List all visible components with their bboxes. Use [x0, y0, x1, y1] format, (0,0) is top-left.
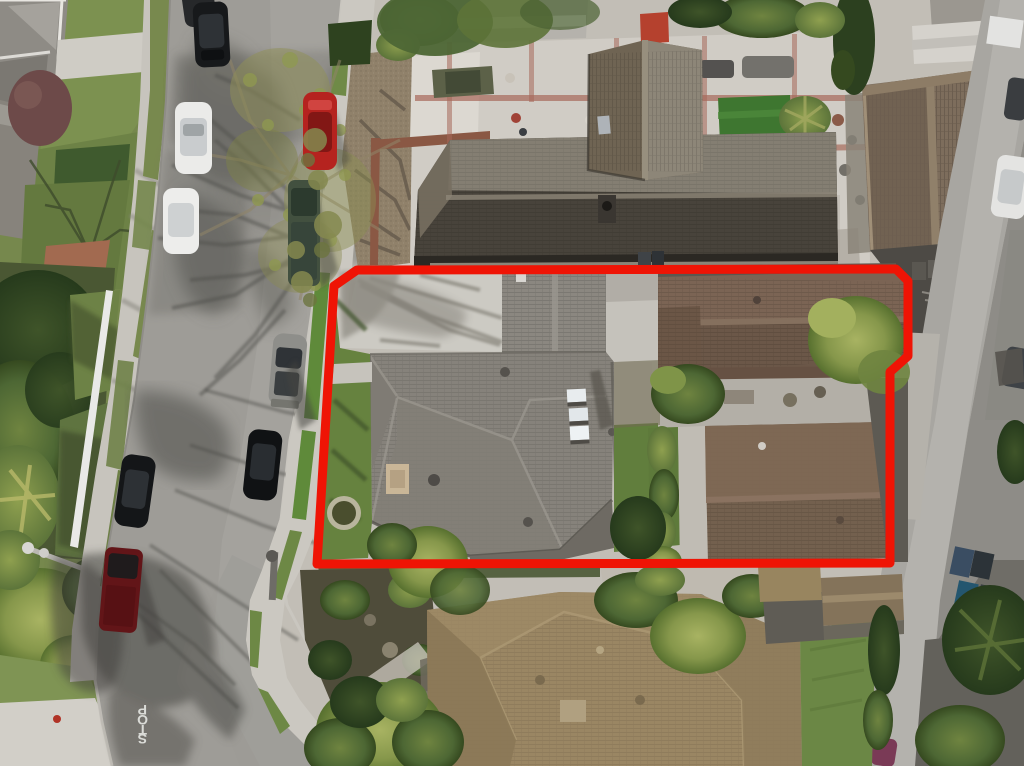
- svg-text:S: S: [138, 731, 147, 747]
